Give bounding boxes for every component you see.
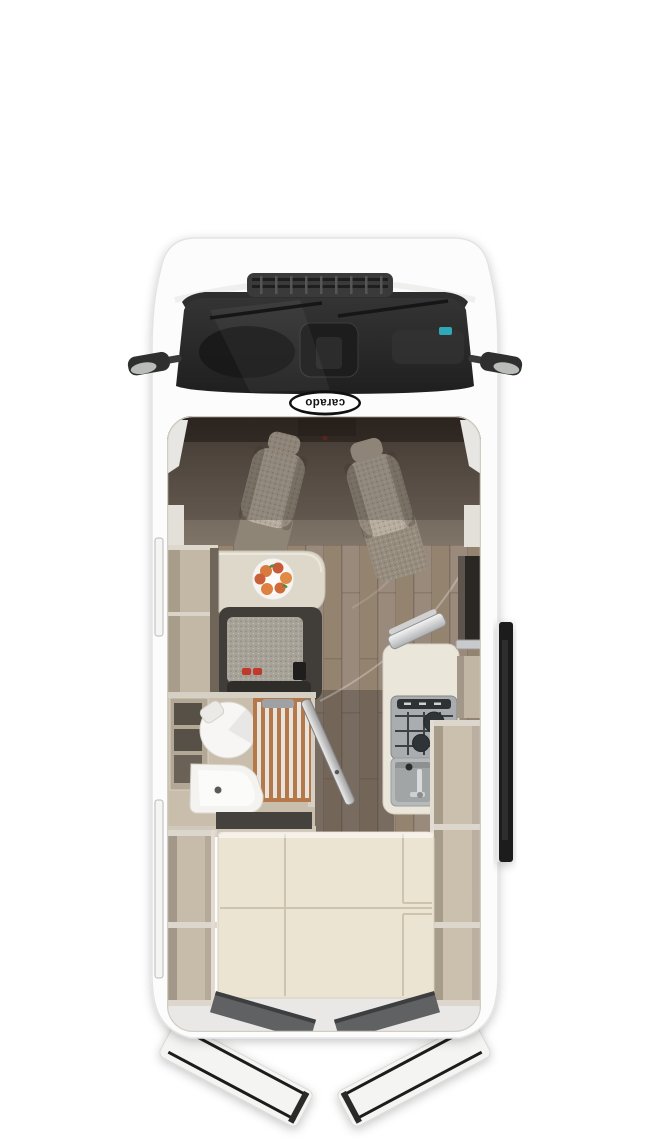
entry-step xyxy=(456,640,483,649)
kitchen-sink xyxy=(391,758,435,806)
bathroom xyxy=(168,692,316,833)
shower-tray xyxy=(253,698,311,802)
vanity-edge xyxy=(216,812,312,829)
washbasin xyxy=(190,764,263,813)
shower-fixture xyxy=(262,699,294,708)
window-left-rear xyxy=(155,800,163,978)
step-left xyxy=(167,505,184,547)
seatbelt-buckle-2 xyxy=(253,668,262,675)
roof-shade-top xyxy=(167,416,481,520)
brand-logo-text: carado xyxy=(305,396,345,408)
hood-vent-grille xyxy=(247,273,393,297)
dinette-bench xyxy=(219,607,322,700)
belt-mount xyxy=(293,662,306,680)
windshield-sticker xyxy=(439,327,452,335)
floorplan-image: carado xyxy=(0,0,650,1140)
fruit-plate xyxy=(252,558,294,600)
step-right xyxy=(464,505,481,547)
wardrobe-left xyxy=(165,830,217,1006)
burner-2 xyxy=(413,735,430,752)
brand-badge: carado xyxy=(289,391,361,416)
entry-doorway xyxy=(456,556,483,718)
sliding-door-panel xyxy=(497,622,514,862)
rear-bed xyxy=(218,832,434,998)
window-left-front xyxy=(155,538,163,636)
seatbelt-buckle-1 xyxy=(242,668,251,675)
windshield xyxy=(176,298,474,394)
faucet xyxy=(417,769,422,795)
sideboard-left xyxy=(168,545,219,700)
wardrobe-right xyxy=(430,720,482,1006)
